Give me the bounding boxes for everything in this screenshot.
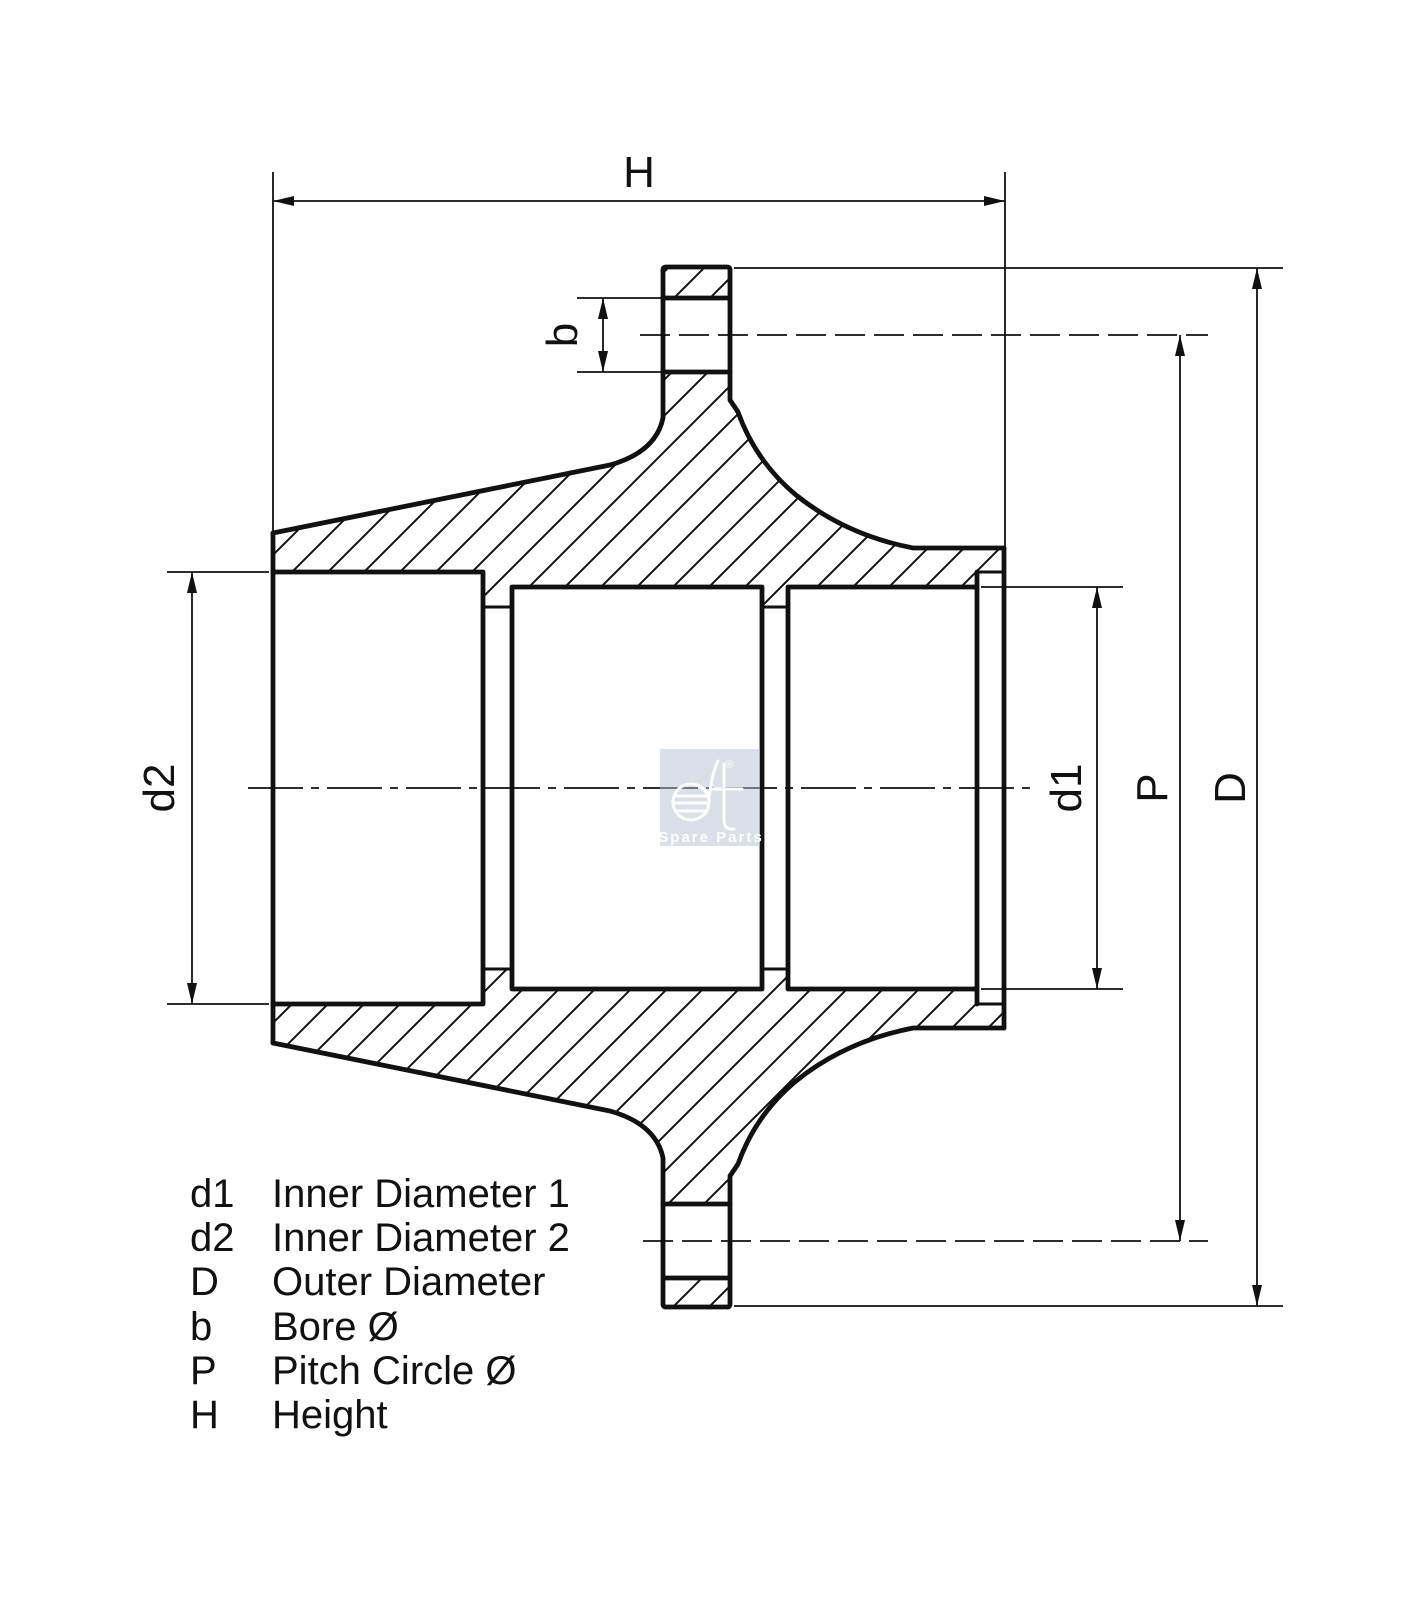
- h-label: H: [623, 148, 655, 197]
- h-arrow-left: [273, 196, 294, 206]
- watermark-tagline: Spare Parts: [658, 829, 763, 846]
- p-arrow-down: [1175, 1220, 1185, 1241]
- d1-arrow-down: [1092, 968, 1102, 989]
- legend-description: Inner Diameter 1: [272, 1172, 570, 1216]
- legend: d1 Inner Diameter 1 d2 Inner Diameter 2 …: [190, 1172, 570, 1437]
- dt-watermark: ® Spare Parts: [658, 749, 763, 846]
- b-arrow-down: [598, 351, 608, 372]
- b-label: b: [538, 323, 587, 347]
- d-label: D: [1206, 772, 1255, 804]
- hatch-lower-flange-tip: [663, 1278, 730, 1307]
- legend-description: Bore Ø: [272, 1305, 399, 1349]
- hatch-upper-flange-tip: [663, 267, 730, 298]
- legend-description: Outer Diameter: [272, 1260, 545, 1304]
- d1-arrow-up: [1092, 587, 1102, 608]
- technical-drawing-page: H b d2 d1 P D: [0, 0, 1426, 1600]
- d-arrow-down: [1252, 1285, 1262, 1306]
- d-arrow-up: [1252, 268, 1262, 289]
- d2-arrow-up: [187, 572, 197, 593]
- legend-symbol: P: [190, 1349, 217, 1393]
- legend-description: Pitch Circle Ø: [272, 1349, 517, 1393]
- wheel-hub-technical-drawing: H b d2 d1 P D: [0, 0, 1426, 1600]
- hub-outline: [273, 267, 1004, 1307]
- h-arrow-right: [984, 196, 1005, 206]
- legend-description: Height: [272, 1393, 388, 1437]
- registered-mark: ®: [725, 759, 733, 771]
- legend-symbol: H: [190, 1393, 219, 1437]
- b-arrow-up: [598, 298, 608, 319]
- legend-symbol: d1: [190, 1172, 235, 1216]
- legend-symbol: b: [190, 1305, 212, 1349]
- d2-arrow-down: [187, 983, 197, 1004]
- legend-description: Inner Diameter 2: [272, 1216, 570, 1260]
- d1-label: d1: [1042, 764, 1091, 813]
- legend-symbol: D: [190, 1260, 219, 1304]
- p-label: P: [1128, 773, 1177, 802]
- legend-symbol: d2: [190, 1216, 235, 1260]
- hub-section-hatching: [273, 267, 1004, 1307]
- d-dimension: [734, 268, 1283, 1306]
- p-arrow-up: [1175, 335, 1185, 356]
- d2-label: d2: [135, 764, 184, 813]
